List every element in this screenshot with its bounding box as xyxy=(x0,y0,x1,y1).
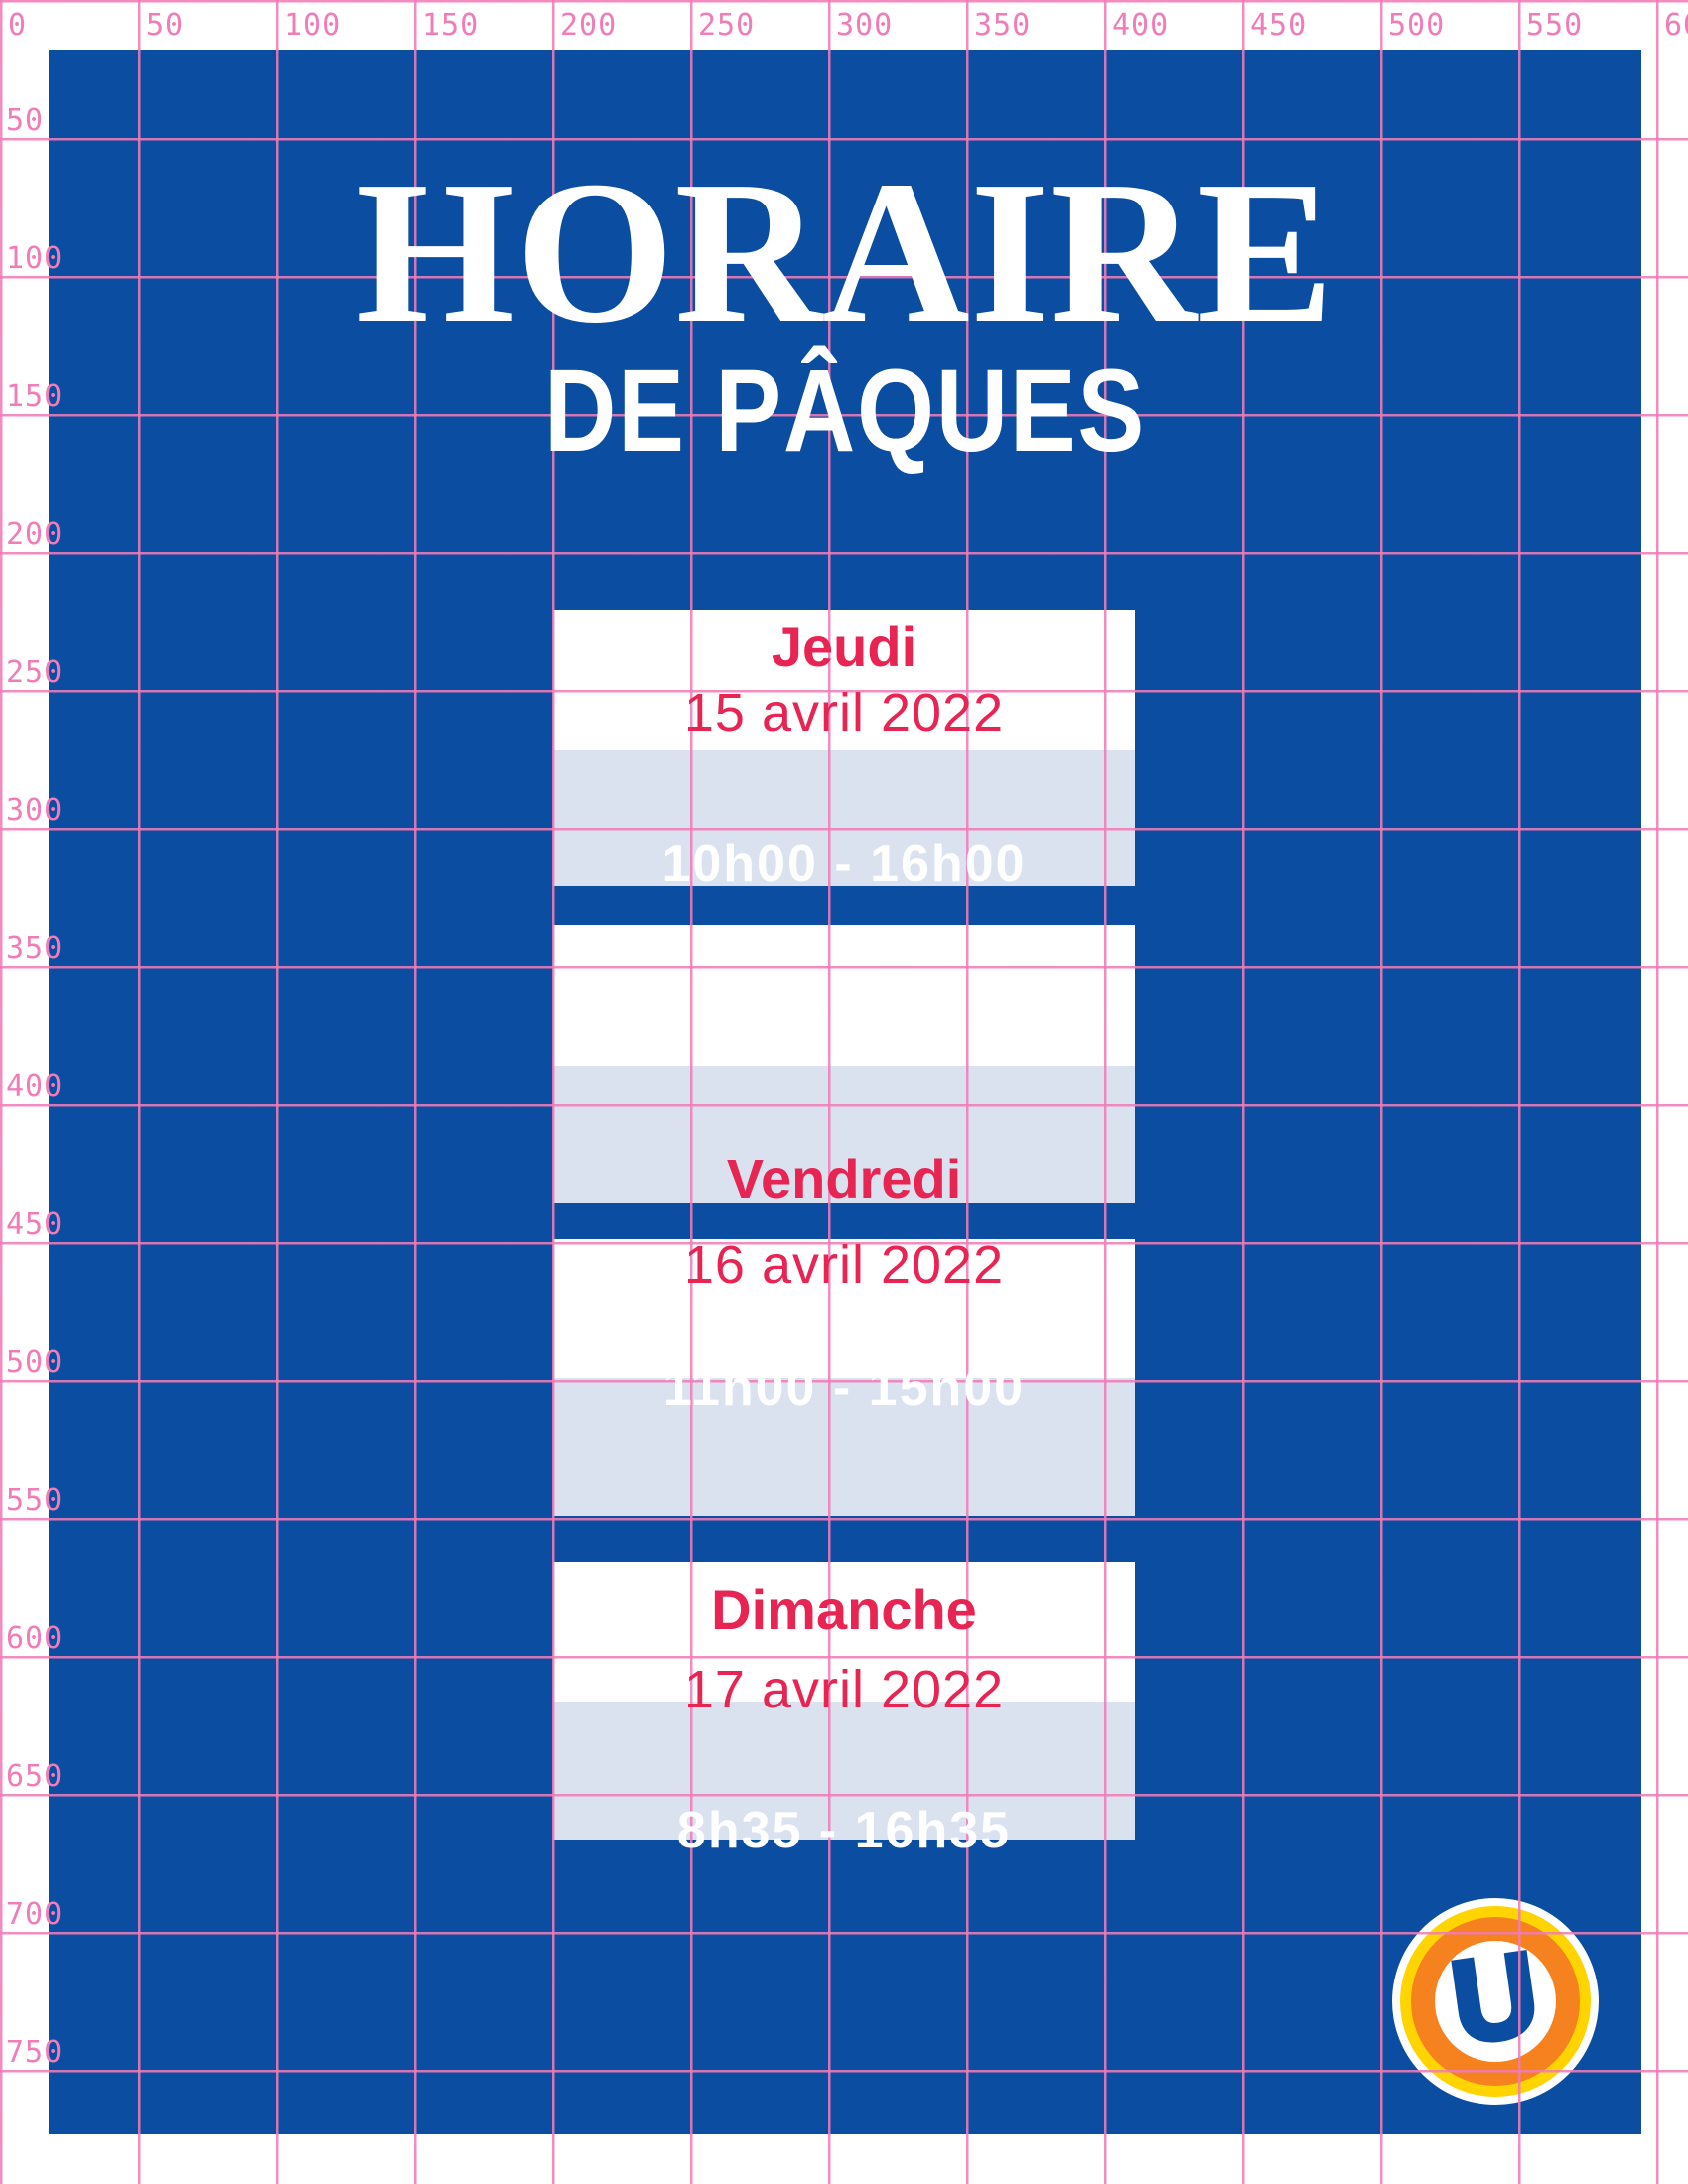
ruler-label-top: 100 xyxy=(284,10,341,42)
ruler-label-top: 450 xyxy=(1250,10,1307,42)
ruler-label-top: 150 xyxy=(422,10,479,42)
design-canvas: U 050100150200250300350400450500550600 5… xyxy=(0,0,1688,2184)
ruler-label-top: 400 xyxy=(1112,10,1169,42)
ruler-label-top: 300 xyxy=(836,10,893,42)
ruler-label-top: 0 xyxy=(8,10,27,42)
jeudi-date: 15 avril 2022 xyxy=(553,683,1135,743)
logo-u-letter: U xyxy=(1379,1885,1613,2118)
dimanche-date: 17 avril 2022 xyxy=(553,1660,1135,1719)
vendredi-hours: 11h00 - 15h00 xyxy=(553,1360,1135,1416)
ruler-label-top: 200 xyxy=(560,10,617,42)
brand-logo: U xyxy=(1392,1898,1599,2105)
ruler-label-top: 350 xyxy=(974,10,1031,42)
ruler-label-top: 250 xyxy=(698,10,755,42)
ruler-label-top: 600 xyxy=(1664,10,1688,42)
poster-subtitle: DE PÂQUES xyxy=(168,361,1521,461)
ruler-label-top: 50 xyxy=(146,10,184,42)
ruler-label-top: 500 xyxy=(1388,10,1445,42)
dimanche-label: Dimanche xyxy=(553,1580,1135,1640)
ruler-label-top: 550 xyxy=(1526,10,1583,42)
ruler-label-left: 50 xyxy=(6,105,44,137)
vendredi-label: Vendredi xyxy=(553,1150,1135,1209)
jeudi-hours: 10h00 - 16h00 xyxy=(553,836,1135,891)
dimanche-hours: 8h35 - 16h35 xyxy=(553,1803,1135,1858)
card-vendredi-white-panel xyxy=(553,925,1135,1066)
poster-title: HORAIRE xyxy=(49,153,1641,351)
jeudi-label: Jeudi xyxy=(553,617,1135,677)
vendredi-date: 16 avril 2022 xyxy=(553,1235,1135,1295)
